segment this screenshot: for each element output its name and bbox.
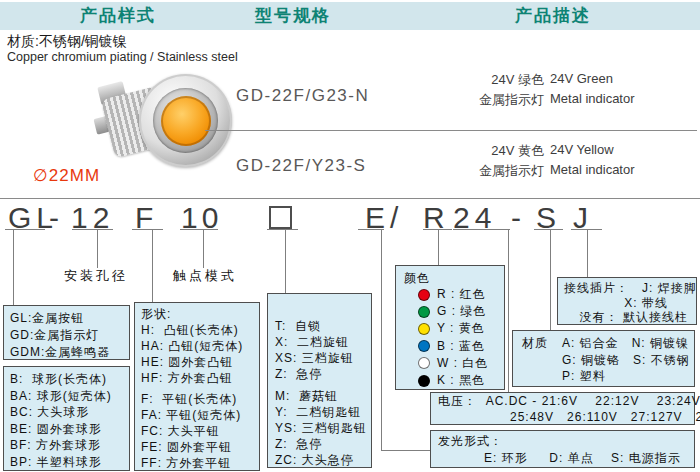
model-code-2: GD-22F/Y23-S — [236, 156, 366, 176]
legend-line: HF: 方外套凸钮 — [141, 370, 259, 386]
tab-product-desc: 产品描述 — [515, 4, 591, 27]
connector — [180, 229, 218, 230]
legend-line: BE: 圆外套球形 — [10, 421, 129, 438]
legend-line: Y: 二档钥匙钮 — [275, 404, 371, 420]
legend-line: A: 铝合金 N: 铜镀镍 — [562, 335, 690, 352]
label-contact-mode: 触点模式 — [173, 267, 237, 285]
code-seg-placeholder-square — [269, 206, 292, 229]
legend-title: 材质 — [522, 335, 548, 385]
connector — [285, 229, 286, 293]
material-note-en: Copper chromium piating / Stainless stee… — [7, 50, 238, 64]
legend-line: 接线插片： J: 焊接脚 — [564, 281, 690, 296]
legend-title: 发光形式： — [438, 433, 694, 450]
photo-orange-lens — [161, 96, 211, 146]
desc-type-cn: 金属指示灯 — [434, 162, 544, 180]
yellow-dot-icon — [418, 323, 430, 335]
legend-line: FE: 圆外套平钮 — [141, 439, 259, 455]
legend-line: X: 带线 — [564, 296, 690, 310]
row-divider — [205, 130, 697, 131]
connector — [152, 229, 153, 302]
series-legend-box: GL:金属按钮 GD:金属指示灯 GDM:金属蜂鸣器 — [3, 305, 130, 360]
code-seg-dash: - — [49, 201, 59, 235]
connector — [72, 229, 113, 230]
legend-line: GDM:金属蜂鸣器 — [10, 344, 129, 361]
connector — [381, 450, 430, 451]
connector — [381, 229, 382, 451]
legend-line: GD:金属指示灯 — [10, 327, 129, 344]
legend-line: ZC: 大头急停 — [275, 452, 371, 468]
legend-line: FF: 方外套平钮 — [141, 455, 259, 471]
color-label: Y : 黄色 — [437, 320, 485, 337]
legend-line: BP: 半塑料球形 — [10, 454, 129, 471]
connector — [203, 229, 204, 268]
ball-shape-legend-box: B: 球形(长壳体) BA: 球形(短壳体) BC: 大头球形 BE: 圆外套球… — [3, 366, 130, 471]
black-dot-icon — [418, 375, 430, 387]
desc-voltage-color-cn: 24V 绿色 — [434, 71, 544, 89]
blue-dot-icon — [418, 340, 430, 352]
connector — [587, 229, 588, 277]
red-dot-icon — [418, 289, 430, 301]
legend-line: B: 球形(长壳体) — [10, 371, 129, 388]
color-label: G : 绿色 — [437, 303, 486, 320]
connector — [97, 229, 98, 268]
desc-voltage-color-cn: 24V 黄色 — [434, 142, 544, 160]
connector — [534, 229, 563, 230]
legend-line: FC: 大头平钮 — [141, 423, 259, 439]
connector — [453, 229, 510, 230]
legend-title: 颜色 — [404, 270, 504, 286]
material-legend-box: 材质 A: 铝合金 N: 铜镀镍 G: 铜镀铬 S: 不锈钢 P: 塑料 — [512, 330, 695, 387]
tab-model-spec: 型号规格 — [255, 4, 331, 27]
connector — [5, 229, 45, 230]
connector — [438, 229, 439, 265]
material-note-cn: 材质:不锈钢/铜镀镍 — [7, 33, 127, 51]
green-dot-icon — [418, 306, 430, 318]
color-row-red: R : 红色 — [404, 286, 504, 303]
legend-line: HA: 凸钮(短壳体) — [141, 338, 259, 354]
white-dot-icon — [418, 357, 430, 369]
legend-line: F: 平钮(长壳体) — [141, 391, 259, 407]
legend-line: Z: 急停 — [275, 366, 371, 382]
legend-line: H: 凸钮(长壳体) — [141, 322, 259, 338]
light-style-legend-box: 发光形式： E: 环形 D: 单点 S: 电源指示 — [430, 430, 695, 468]
desc-voltage-color-en: 24V Green — [550, 71, 613, 86]
desc-type-en: Metal indicator — [550, 91, 635, 106]
action-legend-box: T: 自锁 X: 二档旋钮 XS: 三档旋钮 Z: 急停 M: 蘑菇钮 Y: 二… — [267, 293, 372, 468]
legend-line: X: 二档旋钮 — [275, 334, 371, 350]
color-label: B : 蓝色 — [437, 338, 485, 355]
legend-line: YS: 三档钥匙钮 — [275, 420, 371, 436]
connector — [13, 229, 14, 305]
legend-line: T: 自锁 — [275, 318, 371, 334]
model-code-1: GD-22F/G23-N — [236, 86, 369, 106]
legend-line: GL:金属按钮 — [10, 310, 129, 327]
legend-line: XS: 三档旋钮 — [275, 350, 371, 366]
legend-line: E: 环形 D: 单点 S: 电源指示 — [438, 450, 694, 467]
connector — [132, 229, 163, 230]
shape-legend-box: 形状: H: 凸钮(长壳体) HA: 凸钮(短壳体) HE: 圆外套凸钮 HF:… — [134, 302, 260, 471]
diameter-label: ∅22MM — [33, 165, 100, 186]
desc-type-en: Metal indicator — [550, 162, 635, 177]
desc-type-cn: 金属指示灯 — [434, 91, 544, 109]
legend-line: 电压： AC.DC - 21:6V 22:12V 23:24V 24:36V — [438, 394, 694, 410]
color-label: W : 白色 — [437, 355, 488, 372]
legend-line: 25:48V 26:110V 27:127V 28:220V — [438, 410, 694, 426]
desc-voltage-color-en: 24V Yellow — [550, 142, 614, 157]
code-seg-slash: / — [390, 201, 398, 235]
code-seg-dash: - — [511, 201, 521, 235]
color-row-green: G : 绿色 — [404, 303, 504, 320]
catalog-page: 产品样式 型号规格 产品描述 材质:不锈钢/铜镀镍 Copper chromiu… — [0, 0, 700, 472]
connector — [508, 229, 509, 392]
color-label: K : 黑色 — [437, 372, 485, 389]
legend-line: BA: 球形(短壳体) — [10, 388, 129, 405]
voltage-legend-box: 电压： AC.DC - 21:6V 22:12V 23:24V 24:36V 2… — [430, 392, 695, 425]
legend-title: 形状: — [141, 306, 259, 322]
product-photo — [95, 74, 232, 168]
connector — [267, 229, 298, 230]
legend-line: FA: 平钮(短壳体) — [141, 407, 259, 423]
color-row-blue: B : 蓝色 — [404, 338, 504, 355]
section-divider — [0, 198, 700, 199]
color-label: R : 红色 — [437, 286, 486, 303]
legend-line: BF: 方外套球形 — [10, 437, 129, 454]
label-mounting-hole: 安装孔径 — [64, 267, 128, 285]
legend-line: M: 蘑菇钮 — [275, 388, 371, 404]
legend-line: G: 铜镀铬 S: 不锈钢 — [562, 352, 690, 369]
legend-line: HE: 圆外套凸钮 — [141, 354, 259, 370]
legend-line: BC: 大头球形 — [10, 404, 129, 421]
color-row-black: K : 黑色 — [404, 372, 504, 389]
connector — [550, 229, 551, 330]
color-row-yellow: Y : 黄色 — [404, 320, 504, 337]
legend-line: 没有： 默认接线柱 — [564, 310, 690, 325]
terminal-legend-box: 接线插片： J: 焊接脚 X: 带线 没有： 默认接线柱 — [557, 277, 697, 325]
color-legend-box: 颜色 R : 红色 G : 绿色 Y : 黄色 B : 蓝色 W : 白色 K … — [395, 265, 505, 390]
legend-line: Z: 急停 — [275, 436, 371, 452]
color-row-white: W : 白色 — [404, 355, 504, 372]
tab-product-style: 产品样式 — [80, 4, 156, 27]
legend-line: P: 塑料 — [562, 368, 690, 385]
